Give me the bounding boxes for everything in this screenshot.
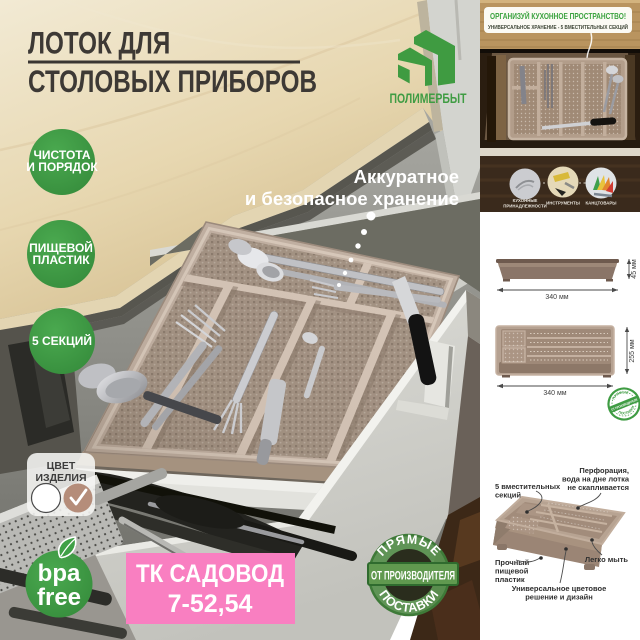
- svg-text:ТК САДОВОД: ТК САДОВОД: [136, 560, 284, 588]
- svg-text:bpa: bpa: [38, 560, 81, 587]
- svg-text:340 мм: 340 мм: [543, 390, 566, 397]
- svg-text:И ПОРЯДОК: И ПОРЯДОК: [26, 160, 98, 174]
- svg-text:секций: секций: [495, 491, 521, 500]
- svg-text:Легко мыть: Легко мыть: [585, 555, 629, 564]
- svg-text:ИНСТРУМЕНТЫ: ИНСТРУМЕНТЫ: [546, 201, 580, 206]
- svg-text:решение и дизайн: решение и дизайн: [525, 593, 593, 602]
- svg-text:ИЗДЕЛИЯ: ИЗДЕЛИЯ: [35, 472, 86, 484]
- svg-text:ЛОТОК ДЛЯ: ЛОТОК ДЛЯ: [28, 25, 170, 60]
- svg-text:КАНЦТОВАРЫ: КАНЦТОВАРЫ: [586, 201, 617, 206]
- svg-text:45 мм: 45 мм: [631, 259, 638, 279]
- svg-text:и безопасное хранение: и безопасное хранение: [245, 188, 459, 209]
- svg-text:free: free: [37, 584, 81, 611]
- svg-text:340 мм: 340 мм: [545, 294, 568, 301]
- svg-text:УНИВЕРСАЛЬНОЕ ХРАНЕНИЕ - 5 ВМЕ: УНИВЕРСАЛЬНОЕ ХРАНЕНИЕ - 5 ВМЕСТИТЕЛЬНЫХ…: [488, 23, 628, 31]
- svg-text:7-52,54: 7-52,54: [168, 590, 253, 618]
- svg-text:ОТ ПРОИЗВОДИТЕЛЯ: ОТ ПРОИЗВОДИТЕЛЯ: [371, 569, 455, 583]
- svg-text:пластик: пластик: [495, 575, 525, 584]
- svg-text:ЦВЕТ: ЦВЕТ: [47, 460, 76, 472]
- svg-text:255 мм: 255 мм: [629, 339, 636, 362]
- svg-text:не скапливается: не скапливается: [567, 483, 629, 492]
- svg-text:ОРГАНИЗУЙ КУХОННОЕ ПРОСТРАНСТВ: ОРГАНИЗУЙ КУХОННОЕ ПРОСТРАНСТВО!: [490, 10, 626, 21]
- svg-text:Аккуратное: Аккуратное: [354, 166, 459, 187]
- svg-text:5 СЕКЦИЙ: 5 СЕКЦИЙ: [32, 333, 92, 348]
- svg-text:ПРИНАДЛЕЖНОСТИ: ПРИНАДЛЕЖНОСТИ: [503, 204, 546, 209]
- svg-text:ПЛАСТИК: ПЛАСТИК: [32, 253, 90, 267]
- svg-text:СТОЛОВЫХ ПРИБОРОВ: СТОЛОВЫХ ПРИБОРОВ: [28, 64, 317, 99]
- svg-text:КУХОННЫЕ: КУХОННЫЕ: [513, 198, 538, 203]
- svg-text:ПОЛИМЕРБЫТ: ПОЛИМЕРБЫТ: [390, 90, 467, 106]
